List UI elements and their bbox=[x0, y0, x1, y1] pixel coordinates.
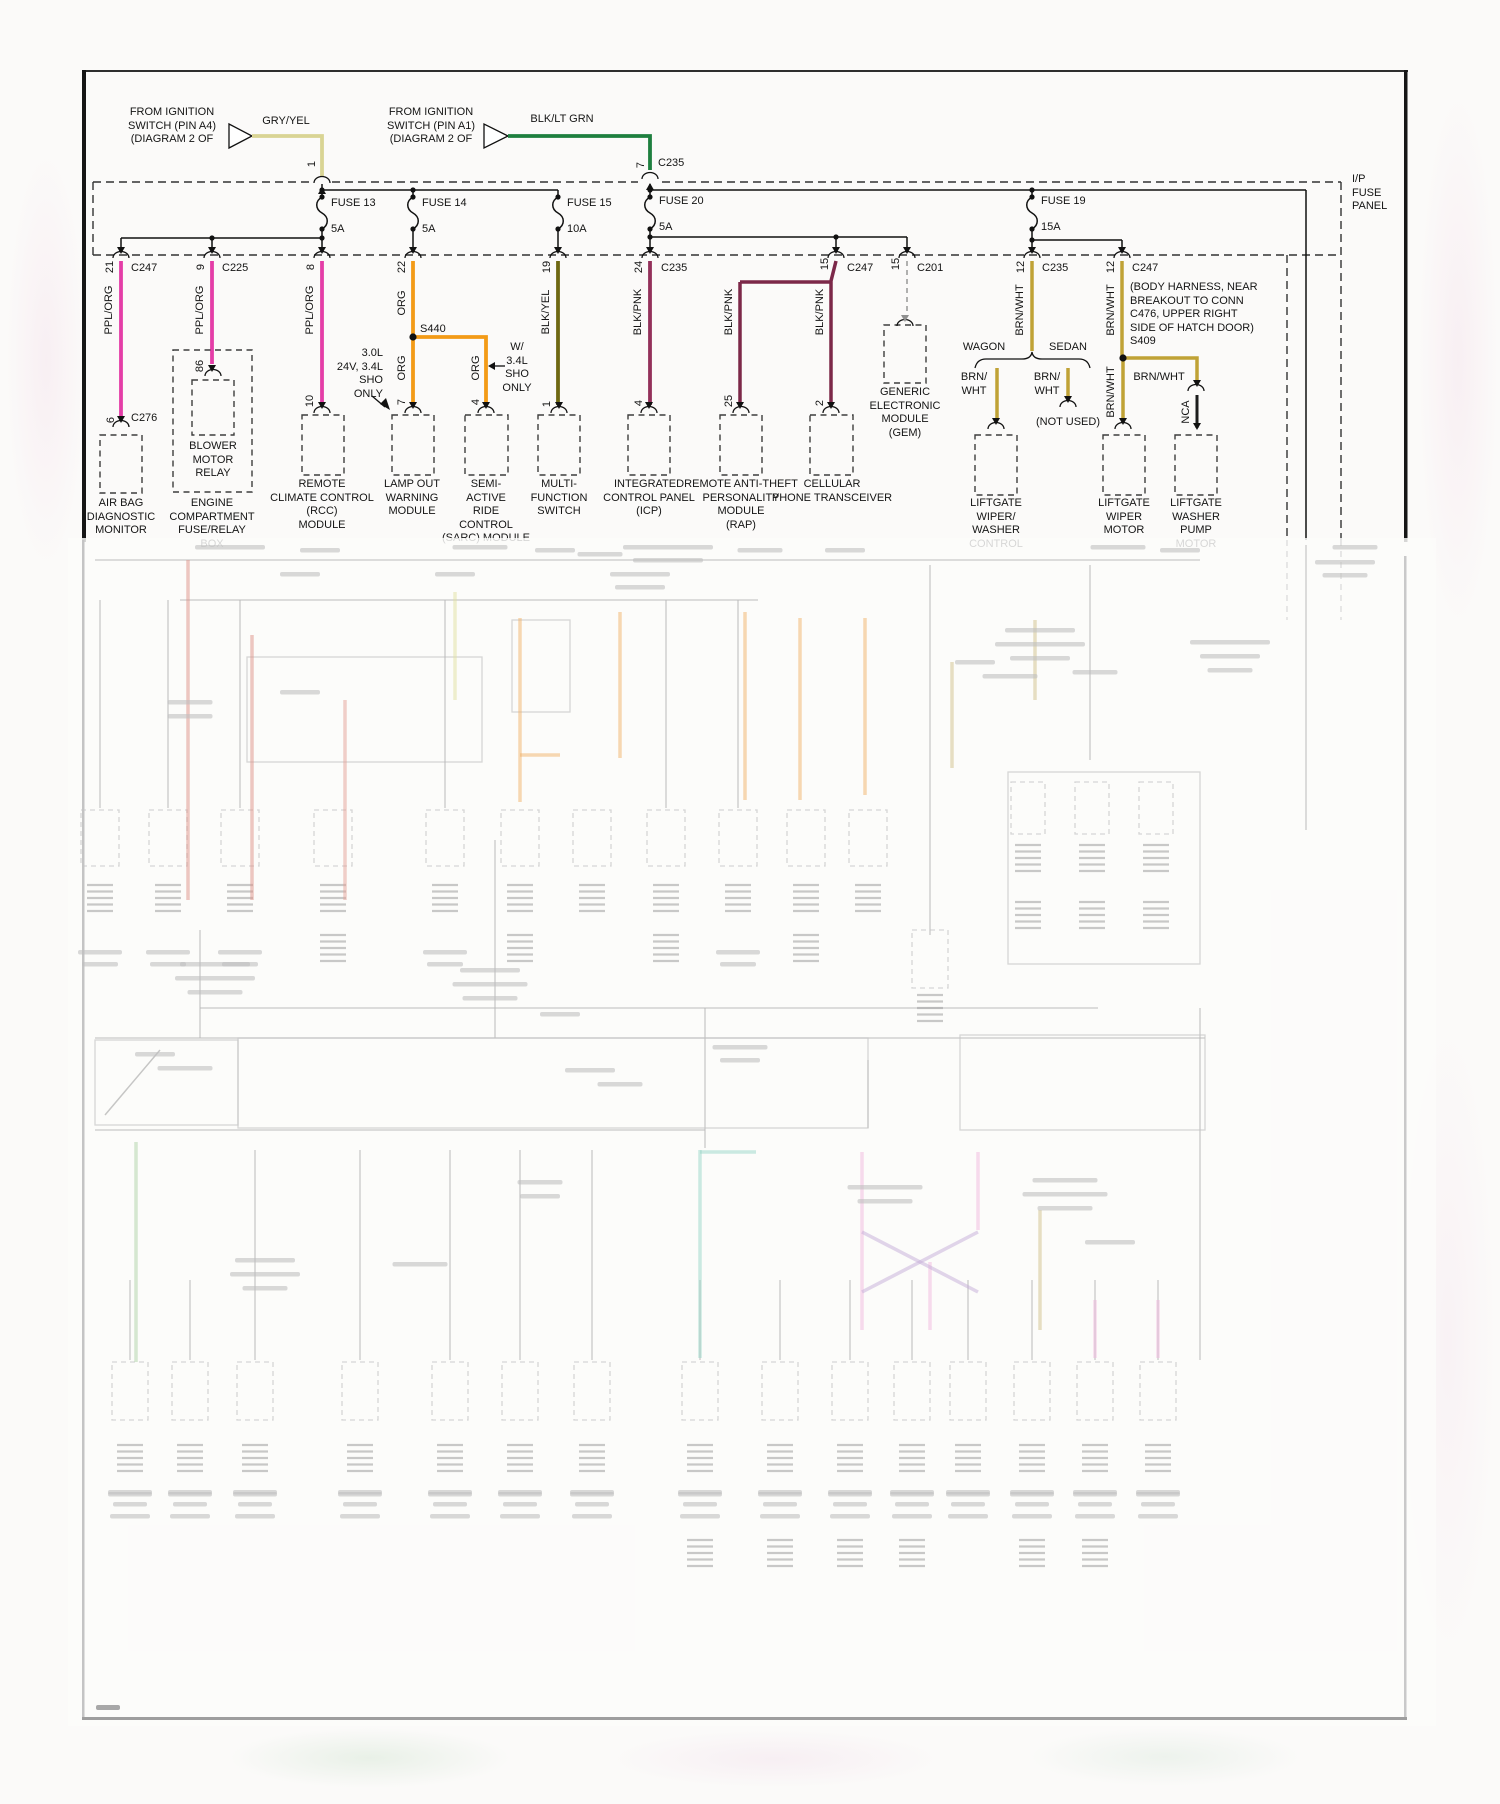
faded-border-left bbox=[82, 540, 85, 1720]
faded-structure bbox=[78, 540, 1378, 1566]
faded-footer-code bbox=[96, 1705, 120, 1710]
faded-border-bottom bbox=[82, 1717, 1407, 1720]
faded-border-right bbox=[1404, 556, 1407, 1720]
faded-diagram-svg bbox=[0, 0, 1500, 1804]
wiring-diagram-page: FROM IGNITIONSWITCH (PIN A4)(DIAGRAM 2 O… bbox=[0, 0, 1500, 1804]
